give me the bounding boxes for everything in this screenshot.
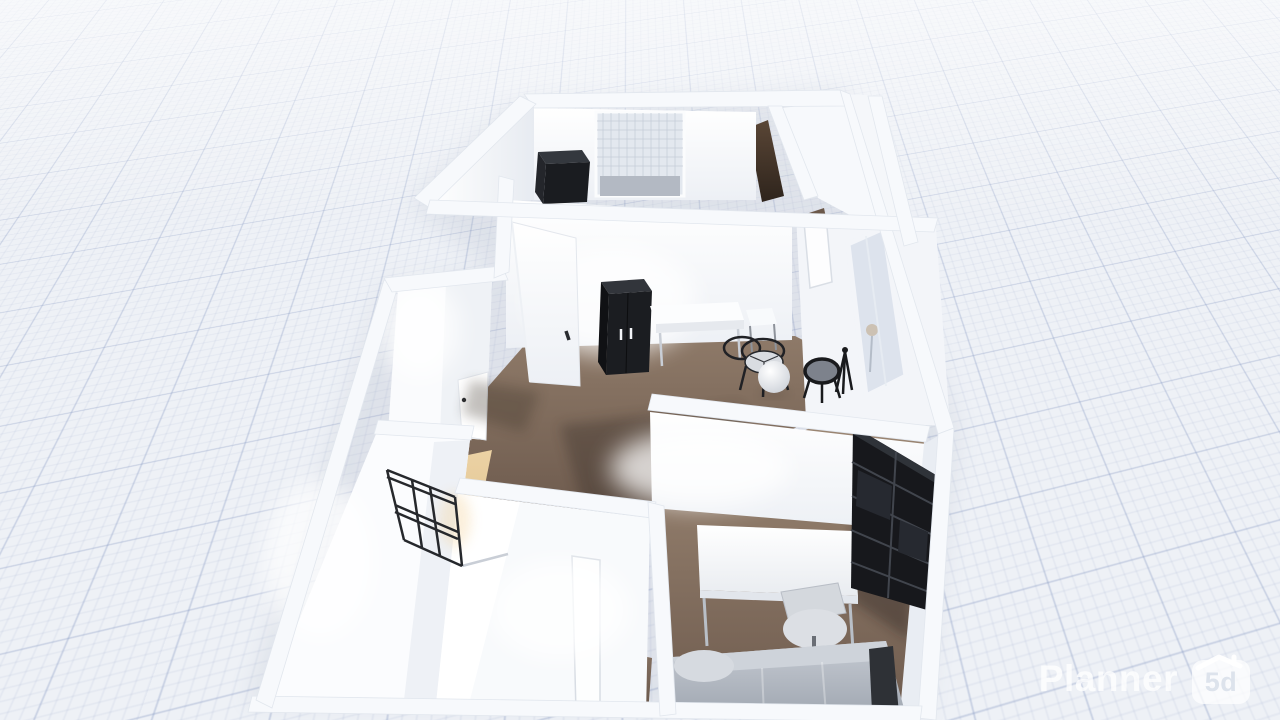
planner5d-3d-viewport[interactable]: Planner 5d — [0, 0, 1280, 720]
wall-top-exterior[interactable] — [524, 90, 848, 108]
ball-lamp[interactable] — [758, 361, 790, 397]
black-cabinet[interactable] — [535, 150, 590, 204]
floorplan-3d-render — [0, 0, 1280, 720]
window-sill-panel — [600, 176, 680, 196]
black-wardrobe[interactable] — [598, 279, 652, 375]
sofa-pillow — [674, 650, 734, 682]
mesh-window[interactable] — [596, 112, 684, 196]
